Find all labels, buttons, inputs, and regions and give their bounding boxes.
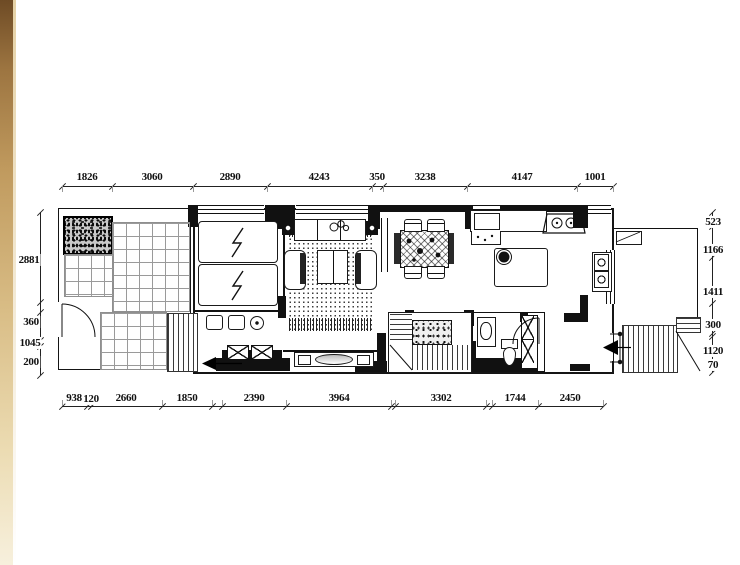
dim-extension <box>603 400 604 406</box>
dim-label-top-5: 3238 <box>414 171 437 183</box>
dim-extension <box>577 186 578 192</box>
dining-chair <box>404 266 422 279</box>
dim-extension <box>383 186 384 192</box>
speaker <box>298 355 311 365</box>
shower-cabinet <box>521 315 538 369</box>
dim-extension <box>486 400 487 406</box>
dim-label-top-6: 4147 <box>511 171 534 183</box>
dim-line-top <box>62 186 613 187</box>
dim-label-right-5: 70 <box>707 359 719 371</box>
side-yard-right-line <box>697 228 698 322</box>
stair-treads-horizontal <box>390 314 412 344</box>
dim-label-top-0: 1826 <box>76 171 99 183</box>
crossed-planter-box <box>227 345 249 360</box>
dim-label-bottom-2: 2660 <box>115 392 138 404</box>
dim-extension <box>62 186 63 192</box>
coffee-table-cross <box>333 251 334 283</box>
side-yard-top-line <box>612 228 697 229</box>
dining-chair <box>427 219 445 232</box>
dim-extension <box>62 400 63 406</box>
tile-floor <box>100 312 167 370</box>
tile-floor <box>112 222 190 312</box>
dim-extension <box>267 186 268 192</box>
sofa <box>294 219 366 241</box>
dim-extension <box>372 186 373 192</box>
window <box>296 205 368 214</box>
wall-pier <box>580 295 588 322</box>
tv <box>315 354 353 365</box>
dim-label-bottom-8: 2450 <box>559 392 582 404</box>
dim-label-bottom-0: 938 <box>65 392 83 404</box>
armchair <box>355 250 377 290</box>
dim-label-top-7: 1001 <box>584 171 607 183</box>
dim-label-top-4: 350 <box>368 171 386 183</box>
coffee-table <box>317 250 348 284</box>
sink-basin <box>480 322 492 340</box>
sofa-side-lamp <box>366 221 378 235</box>
ac-unit <box>616 231 642 245</box>
dim-line-bottom <box>62 406 603 407</box>
dim-label-right-1: 1166 <box>702 244 724 256</box>
stair-planter <box>412 320 452 345</box>
window <box>198 205 264 214</box>
counter-return <box>471 231 501 245</box>
bathroom-sink-counter <box>477 317 496 347</box>
equipment-panel <box>198 264 278 306</box>
dim-label-left-2: 1045 <box>19 337 42 349</box>
photo-frame-edge <box>0 0 13 565</box>
dim-label-right-0: 523 <box>704 216 722 228</box>
dim-label-bottom-4: 2390 <box>243 392 266 404</box>
partition-screen <box>381 218 388 272</box>
bottom-wall-chunk <box>570 364 590 371</box>
cabinet-x-panel <box>522 316 534 340</box>
dim-extension <box>286 400 287 406</box>
dim-label-right-2: 1411 <box>702 286 724 298</box>
dining-chair <box>427 266 445 279</box>
tile-floor <box>64 254 114 297</box>
cabinet-x-panel <box>522 340 534 363</box>
dim-extension <box>222 400 223 406</box>
dim-extension <box>538 400 539 406</box>
planter-bed <box>63 216 113 255</box>
photo-frame-edge-highlight <box>13 0 16 565</box>
rug-fringe <box>289 318 371 331</box>
fridge <box>474 213 500 230</box>
double-sink-unit <box>592 252 612 292</box>
dim-extension <box>391 400 392 406</box>
wall-pier <box>378 205 473 212</box>
equipment-panel <box>198 221 278 263</box>
dim-extension <box>395 400 396 406</box>
courtyard-staircase <box>167 313 198 372</box>
entry-door-gap <box>609 333 613 361</box>
entry-staircase <box>622 325 678 373</box>
armchair-cushion <box>356 253 361 284</box>
dim-label-left-3: 200 <box>22 356 40 368</box>
dim-label-bottom-1: 120 <box>82 393 100 405</box>
dim-label-bottom-7: 1744 <box>504 392 527 404</box>
dining-table <box>400 230 449 268</box>
dim-label-bottom-3: 1850 <box>176 392 199 404</box>
dim-label-right-4: 1120 <box>702 345 724 357</box>
dim-label-left-0: 2881 <box>18 254 41 266</box>
crossed-planter-box <box>251 345 273 360</box>
dim-label-top-3: 4243 <box>308 171 331 183</box>
dim-extension <box>613 186 614 192</box>
kitchen-island <box>494 248 548 287</box>
dim-label-top-2: 2890 <box>219 171 242 183</box>
dim-extension <box>212 400 213 406</box>
dim-label-right-3: 300 <box>704 319 722 331</box>
stool <box>206 315 223 330</box>
wall-pier <box>573 205 588 228</box>
sink-bowl <box>594 271 609 288</box>
sink-bowl <box>594 254 609 271</box>
speaker <box>357 355 370 365</box>
dim-label-left-1: 360 <box>22 316 40 328</box>
dim-extension <box>467 186 468 192</box>
dim-label-bottom-5: 3964 <box>328 392 351 404</box>
stair-landing <box>676 317 701 333</box>
sofa-side-lamp <box>282 221 294 235</box>
round-stool <box>250 316 264 330</box>
dim-extension <box>162 400 163 406</box>
dining-chair <box>404 219 422 232</box>
dim-tick <box>37 372 44 379</box>
stool <box>228 315 245 330</box>
floor-plan-canvas: 1826306028904243350323841471001938120266… <box>0 0 740 565</box>
dim-label-bottom-6: 3302 <box>430 392 453 404</box>
utility-room-bottom-wall <box>193 310 283 312</box>
dim-extension <box>492 400 493 406</box>
window <box>588 205 611 214</box>
dim-extension <box>112 186 113 192</box>
armchair <box>284 250 306 290</box>
armchair-cushion <box>300 253 305 284</box>
dim-label-top-1: 3060 <box>141 171 164 183</box>
courtyard-door-gap <box>56 302 60 337</box>
dim-extension <box>193 186 194 192</box>
wall-pier <box>278 296 286 318</box>
dim-line-left <box>40 212 41 375</box>
stair-treads-vertical <box>412 345 468 370</box>
